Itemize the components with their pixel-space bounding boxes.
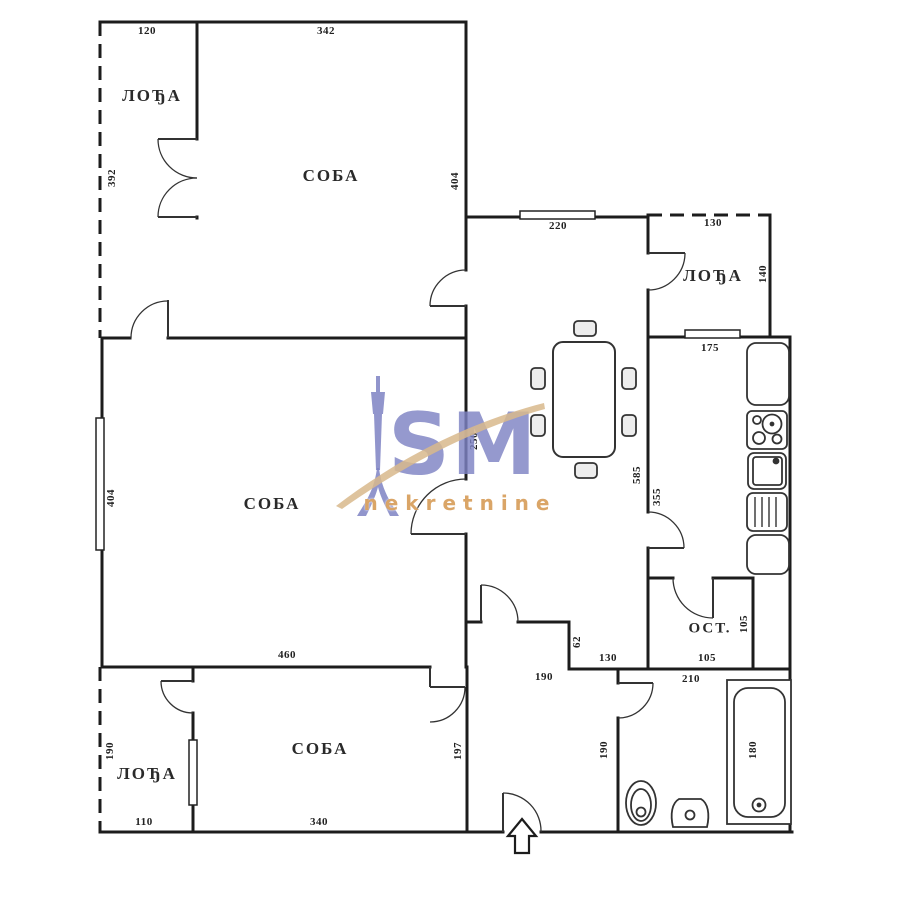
dimension-label: 62 bbox=[571, 636, 583, 648]
kitchen-counter-run bbox=[747, 343, 789, 574]
dimension-label: 190 bbox=[104, 742, 116, 760]
dimension-label: 175 bbox=[701, 342, 719, 354]
room-label-top-room: СОБА bbox=[303, 166, 360, 186]
room-label-loggia-top-right: ЛОЂА bbox=[683, 266, 743, 286]
room-label-loggia-bottom-left: ЛОЂА bbox=[117, 764, 177, 784]
dashed-walls bbox=[100, 22, 770, 832]
walls-layer bbox=[100, 22, 792, 832]
dimension-label: 220 bbox=[549, 220, 567, 232]
bidet bbox=[672, 799, 709, 827]
window bbox=[685, 330, 740, 338]
kitchen-fridge bbox=[747, 343, 789, 405]
room-label-pantry: ОСТ. bbox=[689, 621, 732, 638]
dimension-label: 342 bbox=[317, 25, 335, 37]
bathroom-fixtures bbox=[626, 680, 791, 827]
dimension-label: 190 bbox=[598, 741, 610, 759]
toilet bbox=[626, 781, 656, 825]
entrance-arrow bbox=[508, 819, 536, 853]
dimension-label: 130 bbox=[704, 217, 722, 229]
chair bbox=[622, 368, 636, 389]
dimension-label: 585 bbox=[631, 466, 643, 484]
dimension-label: 197 bbox=[452, 742, 464, 760]
dining-set bbox=[531, 321, 636, 478]
dimension-label: 110 bbox=[135, 816, 152, 828]
dining-table bbox=[553, 342, 615, 457]
dimension-label: 105 bbox=[698, 652, 716, 664]
dimension-label: 460 bbox=[278, 649, 296, 661]
chair bbox=[531, 368, 545, 389]
dimension-label: 210 bbox=[682, 673, 700, 685]
bathtub bbox=[727, 680, 791, 824]
dimension-label: 105 bbox=[738, 615, 750, 633]
dimension-label: 120 bbox=[138, 25, 156, 37]
dimension-label: 190 bbox=[535, 671, 553, 683]
window bbox=[520, 211, 595, 219]
dimension-label: 140 bbox=[757, 265, 769, 283]
chair bbox=[531, 415, 545, 436]
doors-layer bbox=[131, 139, 713, 832]
dimension-label: 340 bbox=[310, 816, 328, 828]
dimension-label: 404 bbox=[105, 489, 117, 507]
kitchen-drainer bbox=[747, 493, 787, 531]
room-label-loggia-top-left: ЛОЂА bbox=[122, 86, 182, 106]
chair bbox=[575, 463, 597, 478]
chair bbox=[622, 415, 636, 436]
chair bbox=[574, 321, 596, 336]
kitchen-counter bbox=[747, 535, 789, 574]
dimension-label: 250 bbox=[468, 432, 480, 450]
dimension-label: 355 bbox=[651, 488, 663, 506]
window bbox=[189, 740, 197, 805]
room-label-bottom-room: СОБА bbox=[292, 739, 349, 759]
floor-plan: ЛОЂА СОБА ЛОЂА СОБА ОСТ. СОБА ЛОЂА 120 3… bbox=[0, 0, 900, 900]
dimension-label: 392 bbox=[106, 169, 118, 187]
dimension-label: 180 bbox=[747, 741, 759, 759]
dimension-label: 404 bbox=[449, 172, 461, 190]
window bbox=[96, 418, 104, 550]
dimension-label: 130 bbox=[599, 652, 617, 664]
room-label-central-room: СОБА bbox=[244, 494, 301, 514]
